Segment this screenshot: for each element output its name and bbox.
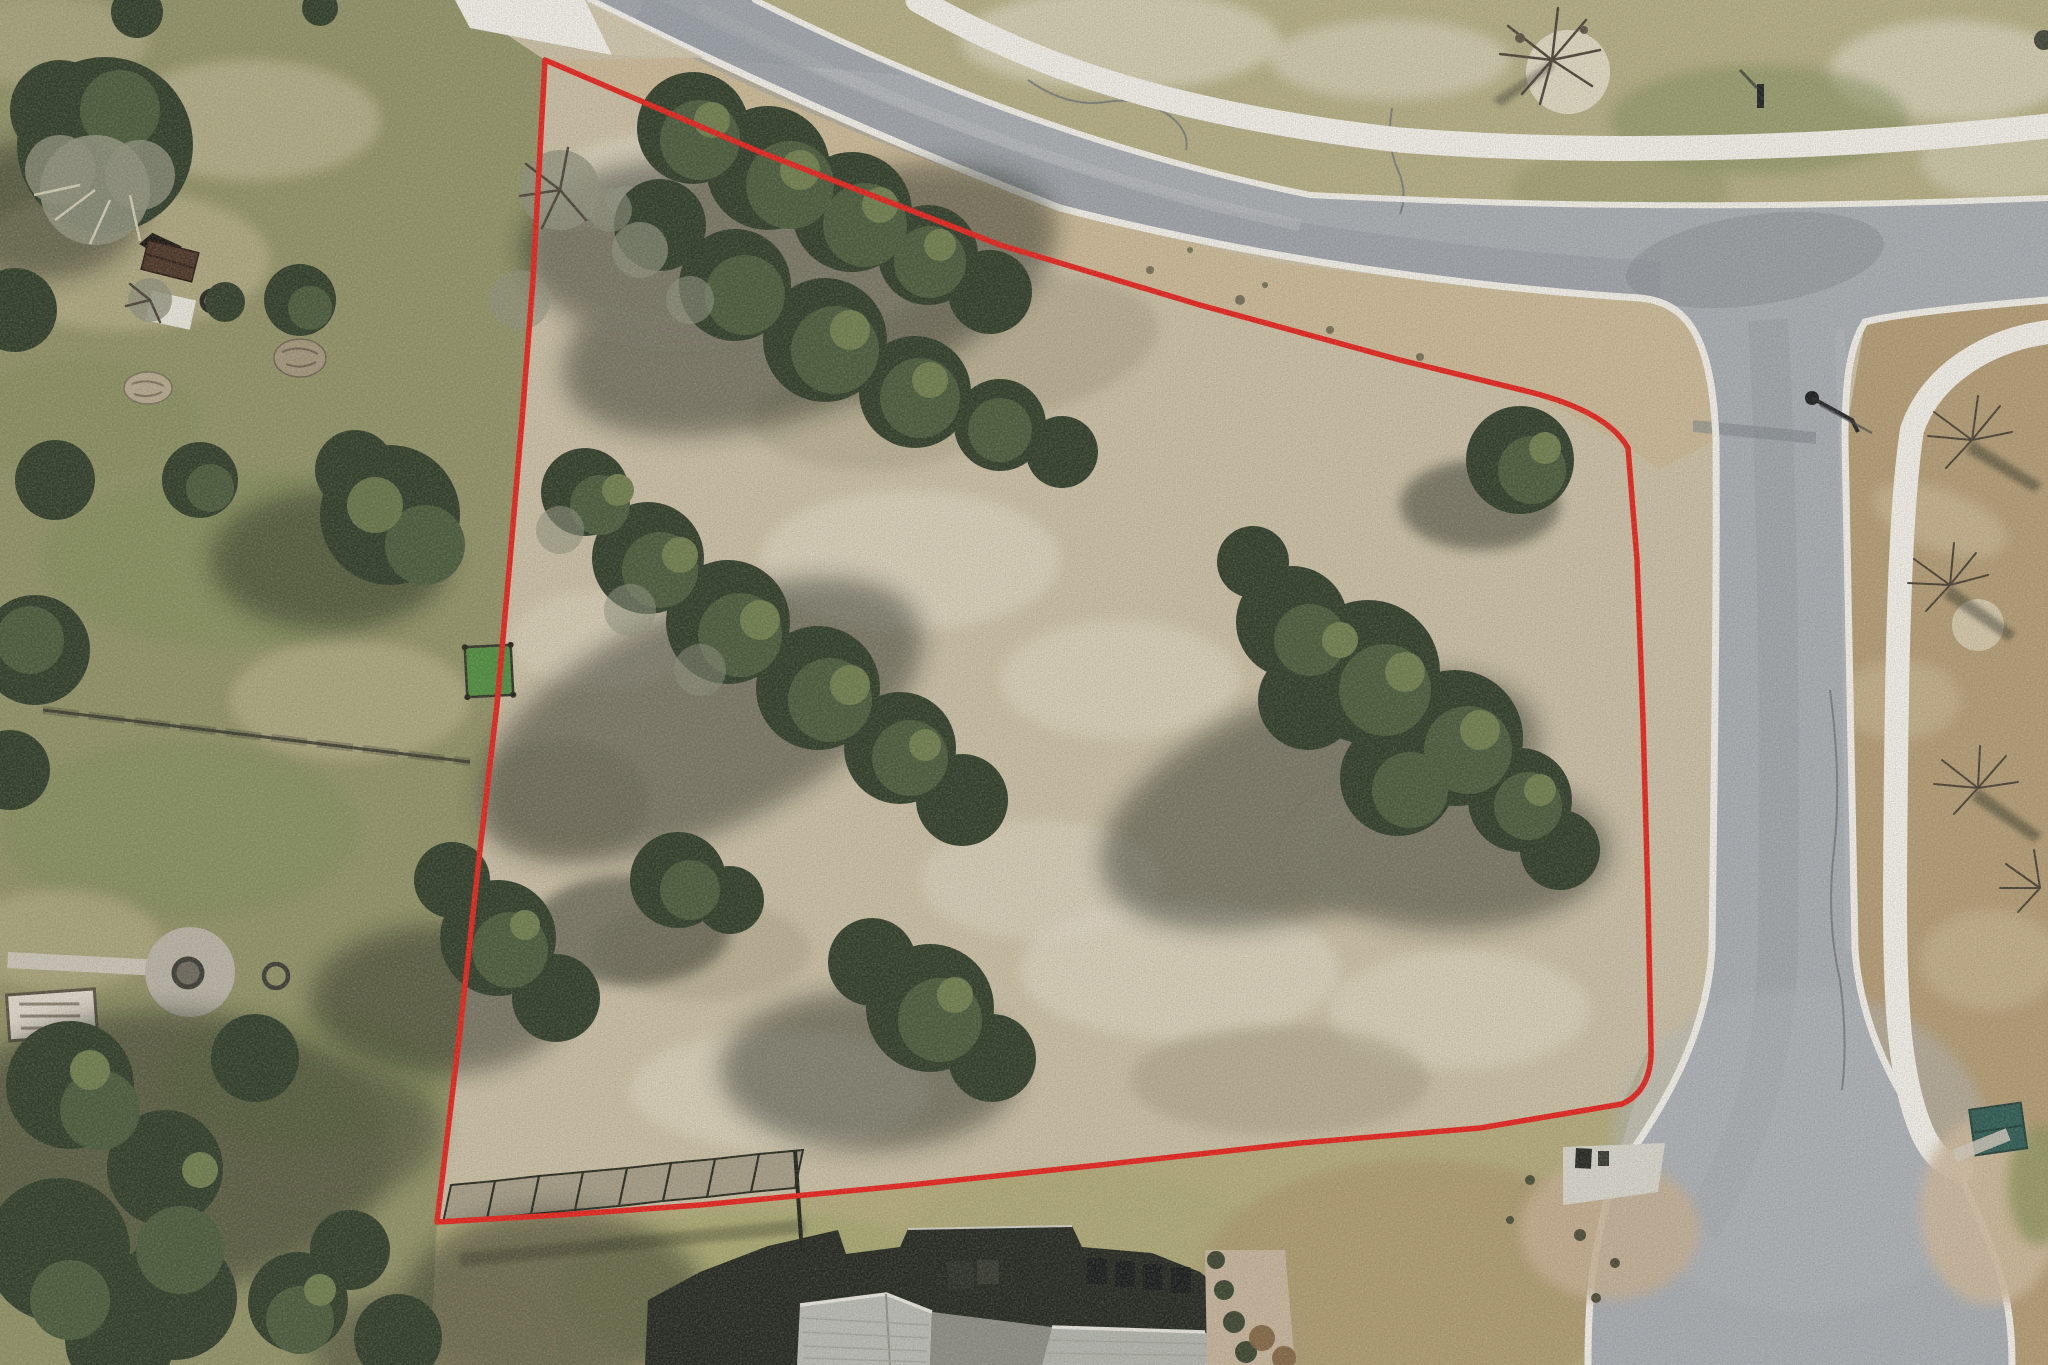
photo-grain-light	[0, 0, 2048, 1365]
aerial-photo	[0, 0, 2048, 1365]
aerial-photo-canvas	[0, 0, 2048, 1365]
